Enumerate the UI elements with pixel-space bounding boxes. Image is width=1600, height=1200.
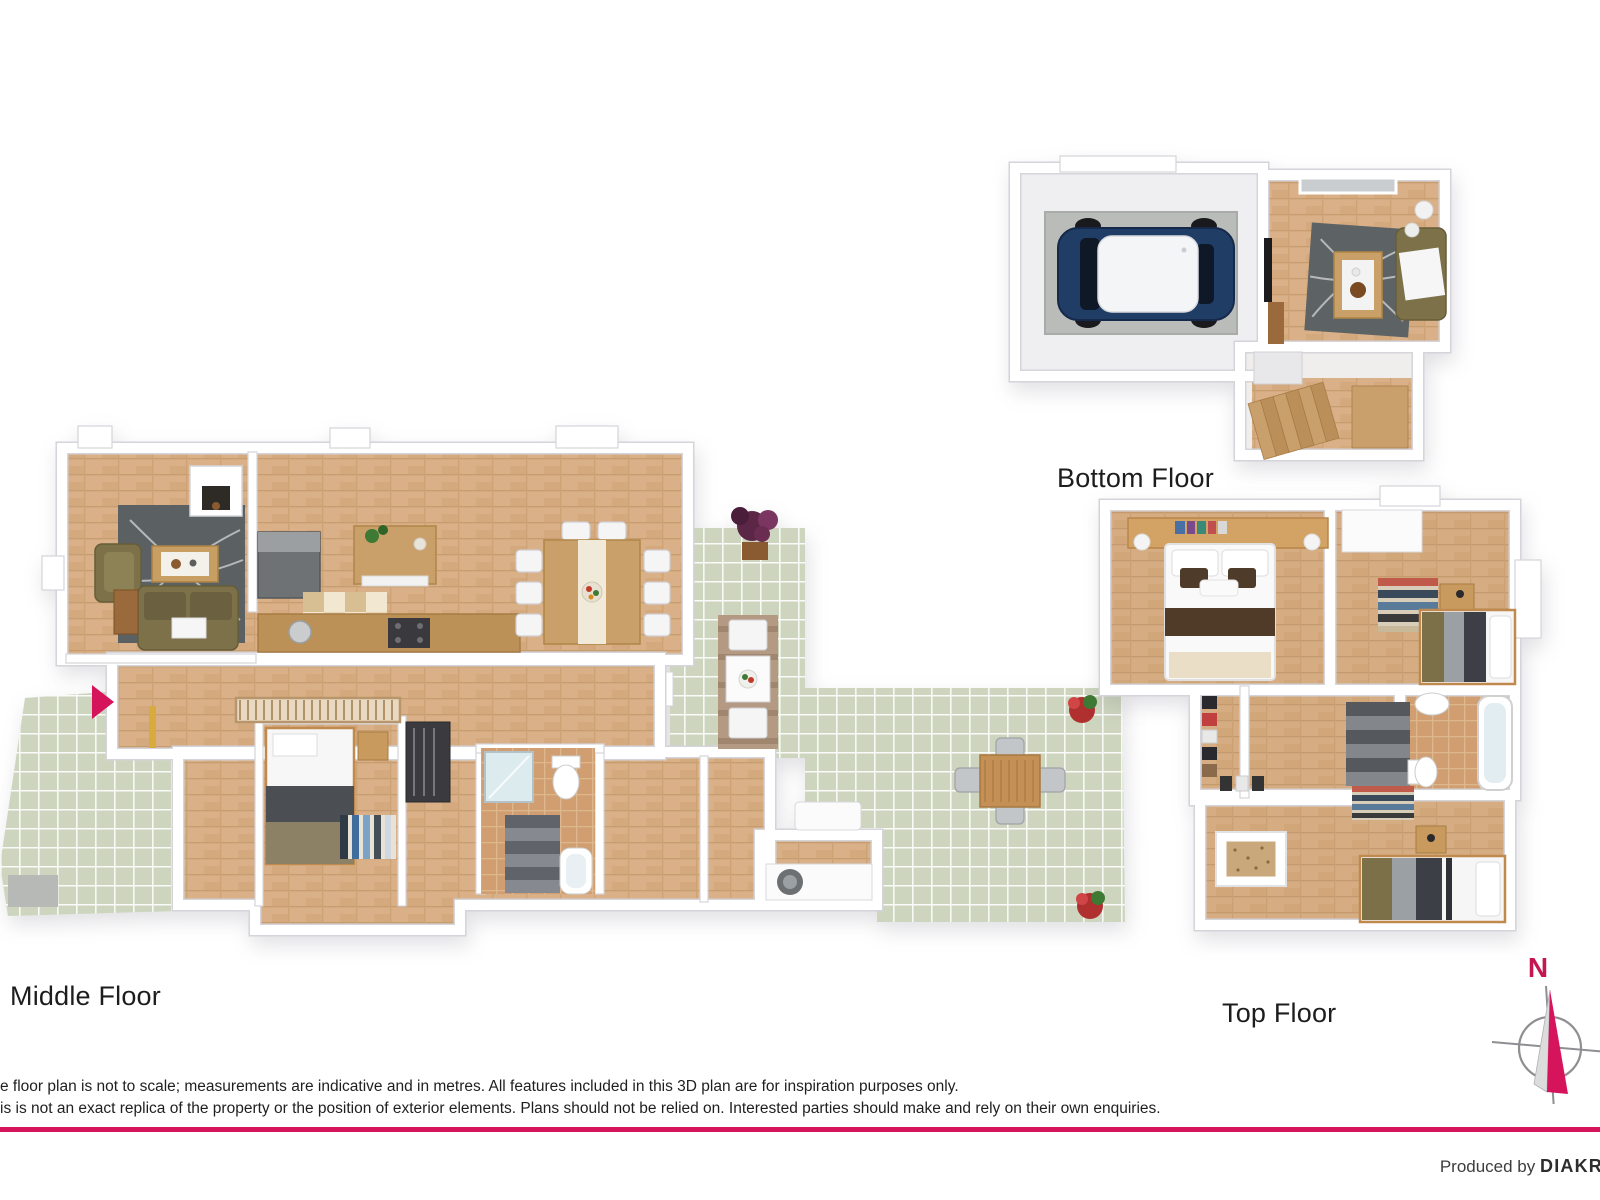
car-roof bbox=[1098, 236, 1198, 312]
shower bbox=[485, 752, 533, 802]
sink bbox=[1415, 693, 1449, 715]
patio-bench bbox=[795, 802, 861, 830]
bedside-lamp bbox=[1134, 534, 1150, 550]
double-bed bbox=[1165, 544, 1275, 680]
laundry bbox=[766, 864, 872, 900]
side-cabinet bbox=[114, 590, 138, 634]
skylight bbox=[1216, 832, 1286, 886]
bottom-floor-label: Bottom Floor bbox=[1057, 463, 1214, 494]
built-in-closet bbox=[1342, 510, 1422, 552]
fireplace bbox=[190, 466, 242, 516]
bedside-lamp bbox=[1304, 534, 1320, 550]
kitchen-island bbox=[354, 525, 436, 586]
top-floor-label: Top Floor bbox=[1222, 998, 1336, 1029]
wall bbox=[398, 716, 406, 906]
wall bbox=[66, 654, 256, 663]
sink bbox=[289, 621, 311, 643]
single-bed bbox=[1360, 856, 1505, 922]
doormat bbox=[8, 875, 58, 907]
tv-cabinet bbox=[1268, 302, 1284, 344]
floor-lamp bbox=[1415, 201, 1433, 219]
produced-by-label: Produced by bbox=[1440, 1157, 1540, 1176]
wall bbox=[248, 452, 257, 612]
garage-door bbox=[1060, 156, 1176, 172]
wall bbox=[595, 744, 604, 894]
stair-landing bbox=[1352, 386, 1408, 448]
top-floor-plan bbox=[1080, 480, 1560, 970]
brand-divider-line bbox=[0, 1127, 1600, 1132]
nightstand bbox=[358, 732, 388, 760]
compass-rose: N bbox=[1486, 946, 1600, 1104]
single-bed bbox=[1420, 610, 1515, 684]
coffee-table bbox=[1334, 252, 1382, 318]
sofa bbox=[1396, 228, 1446, 320]
threshold bbox=[149, 706, 156, 748]
disclaimer-text: e floor plan is not to scale; measuremen… bbox=[0, 1076, 1161, 1119]
staircase-down bbox=[505, 815, 560, 893]
compass-needle-pink bbox=[1547, 990, 1568, 1094]
striped-rug bbox=[340, 815, 396, 859]
fridge bbox=[258, 532, 320, 598]
toilet bbox=[552, 756, 580, 799]
open-book bbox=[172, 618, 206, 638]
wardrobe bbox=[406, 722, 450, 802]
wall bbox=[255, 716, 263, 906]
outdoor-table bbox=[980, 755, 1040, 807]
car bbox=[1058, 218, 1234, 328]
bathroom bbox=[481, 748, 595, 894]
disclaimer-line1: e floor plan is not to scale; measuremen… bbox=[0, 1076, 1161, 1098]
bottom-floor-plan bbox=[1000, 150, 1470, 480]
wall bbox=[700, 756, 708, 902]
stair-void-railing bbox=[236, 698, 400, 722]
staircase bbox=[1346, 702, 1410, 786]
coffee-table bbox=[152, 546, 218, 582]
sofa bbox=[138, 586, 238, 650]
middle-floor-label: Middle Floor bbox=[10, 981, 161, 1012]
compass-graphic bbox=[1486, 980, 1600, 1104]
produced-by: Produced by DIAKR bbox=[1440, 1156, 1600, 1177]
wall-tv bbox=[1264, 238, 1272, 302]
kitchen-counter bbox=[258, 614, 520, 652]
middle-floor-plan bbox=[0, 410, 1140, 975]
disclaimer-line2: is is not an exact replica of the proper… bbox=[0, 1098, 1161, 1120]
toilet bbox=[1415, 757, 1437, 787]
stove bbox=[388, 618, 430, 648]
striped-rug bbox=[1352, 786, 1414, 820]
bistro-set bbox=[718, 615, 778, 749]
window bbox=[1300, 178, 1396, 193]
brand-logo-text: DIAKR bbox=[1540, 1156, 1600, 1176]
